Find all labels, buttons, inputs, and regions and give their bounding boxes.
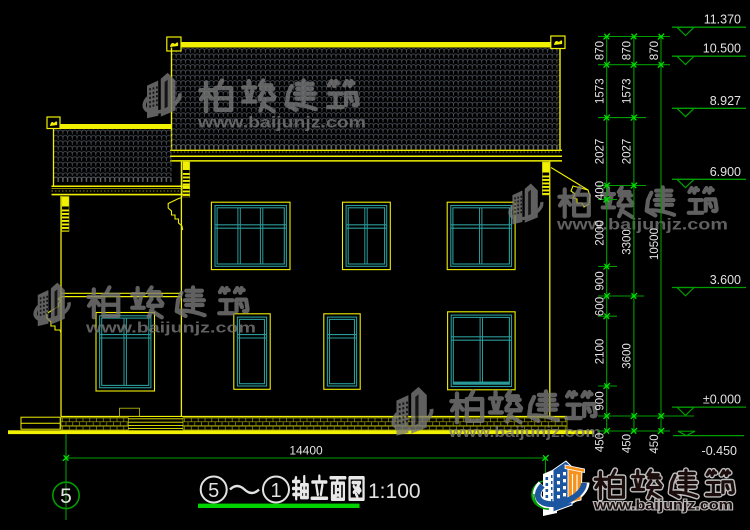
svg-text:2000: 2000	[595, 220, 607, 246]
svg-text:1573: 1573	[595, 78, 607, 104]
svg-text:11.370: 11.370	[704, 13, 741, 27]
svg-text:1: 1	[270, 480, 281, 502]
svg-text:3600: 3600	[622, 343, 634, 369]
svg-text:900: 900	[595, 271, 607, 290]
svg-text:www.baijunjz.com: www.baijunjz.com	[197, 115, 366, 132]
svg-text:5: 5	[208, 480, 219, 502]
svg-text:±0.000: ±0.000	[703, 393, 741, 407]
svg-text:3300: 3300	[622, 229, 634, 255]
svg-text:870: 870	[649, 41, 661, 60]
svg-text:1:100: 1:100	[368, 480, 421, 503]
svg-text:450: 450	[649, 434, 661, 453]
svg-text:14400: 14400	[289, 444, 323, 458]
svg-text:870: 870	[595, 41, 607, 60]
svg-text:6.900: 6.900	[710, 165, 741, 179]
svg-text:www.baijunjz.com: www.baijunjz.com	[593, 498, 733, 513]
svg-text:2100: 2100	[595, 339, 607, 365]
svg-text:450: 450	[622, 434, 634, 453]
svg-text:8.927: 8.927	[710, 94, 741, 108]
svg-text:-0.450: -0.450	[702, 444, 737, 458]
svg-text:www.baijunjz.com: www.baijunjz.com	[448, 425, 601, 441]
svg-text:10.500: 10.500	[703, 42, 741, 56]
svg-text:3.600: 3.600	[710, 273, 741, 287]
svg-text:www.baijunjz.com: www.baijunjz.com	[85, 320, 256, 337]
svg-text:2027: 2027	[595, 139, 607, 165]
svg-text:10500: 10500	[649, 228, 661, 260]
svg-text:870: 870	[622, 41, 634, 60]
svg-text:400: 400	[595, 181, 607, 200]
svg-text:600: 600	[595, 297, 607, 316]
svg-text:2027: 2027	[622, 139, 634, 165]
svg-text:900: 900	[595, 391, 607, 410]
svg-text:www.baijunjz.com: www.baijunjz.com	[556, 217, 728, 234]
svg-text:1573: 1573	[622, 78, 634, 104]
svg-text:5: 5	[60, 485, 72, 508]
svg-text:450: 450	[595, 433, 607, 452]
